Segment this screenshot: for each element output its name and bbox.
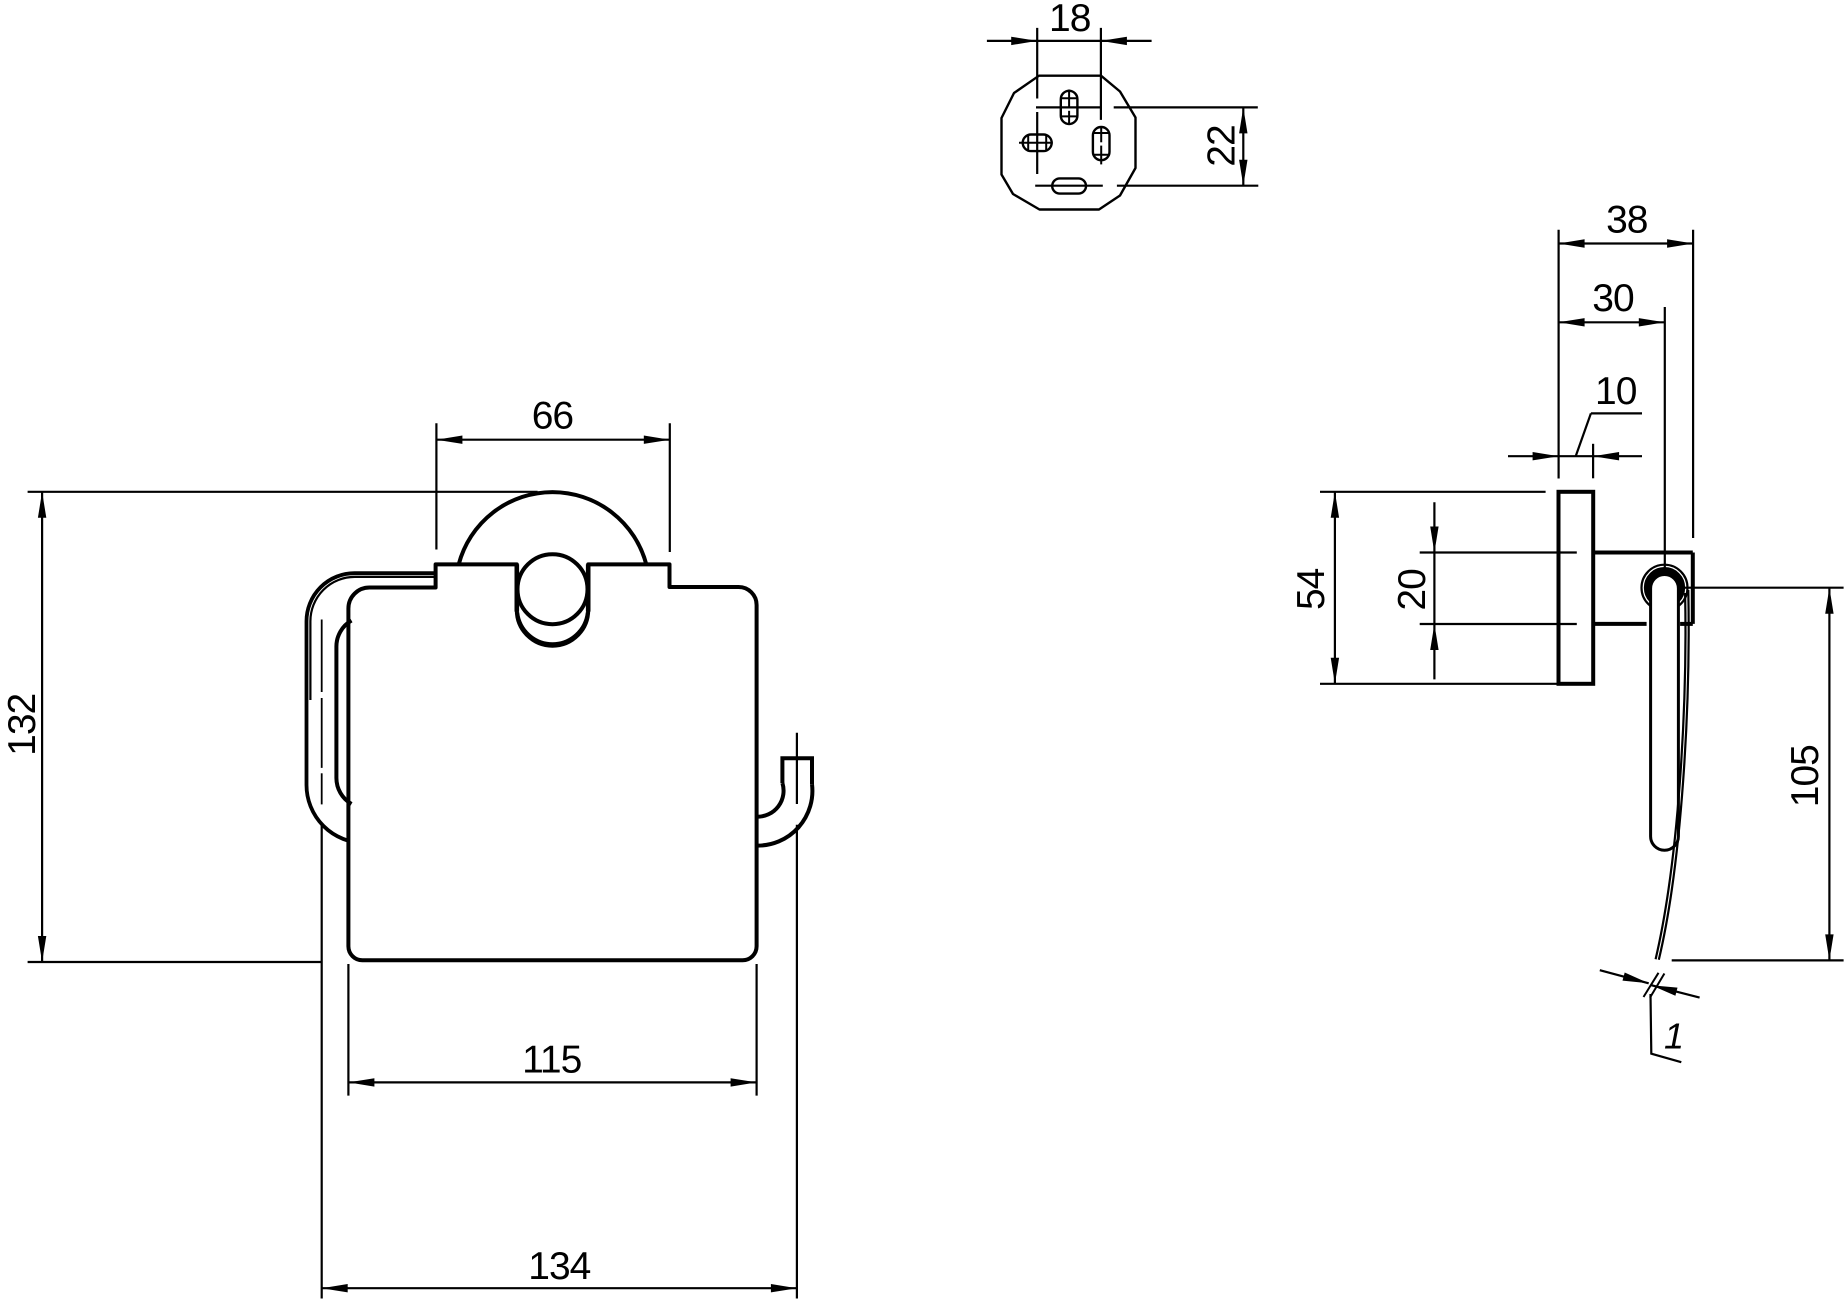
svg-text:115: 115 (522, 1038, 581, 1081)
svg-text:10: 10 (1595, 370, 1637, 413)
svg-text:38: 38 (1606, 199, 1647, 242)
svg-text:20: 20 (1391, 569, 1434, 611)
svg-text:105: 105 (1784, 745, 1827, 807)
svg-text:134: 134 (528, 1245, 590, 1288)
svg-text:132: 132 (1, 694, 44, 756)
svg-text:22: 22 (1200, 125, 1243, 166)
svg-text:66: 66 (532, 395, 573, 438)
svg-text:1: 1 (1664, 1016, 1683, 1057)
svg-text:18: 18 (1049, 0, 1090, 40)
svg-text:54: 54 (1290, 568, 1333, 610)
svg-text:30: 30 (1592, 277, 1634, 320)
